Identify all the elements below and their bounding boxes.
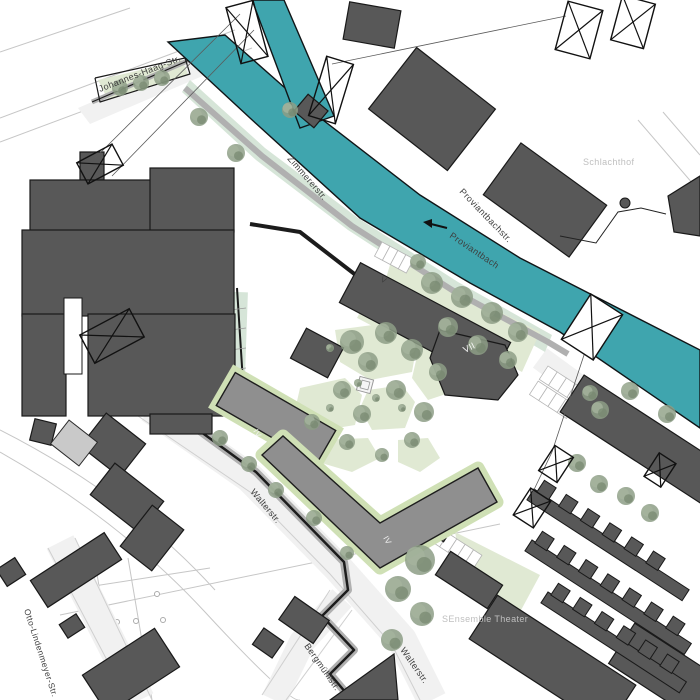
tree bbox=[326, 344, 334, 352]
building-light bbox=[51, 420, 98, 466]
building-existing bbox=[22, 314, 66, 416]
building-existing bbox=[150, 414, 212, 434]
tree bbox=[421, 272, 443, 294]
tree bbox=[306, 510, 322, 526]
tree bbox=[358, 352, 378, 372]
tree bbox=[405, 545, 435, 575]
retaining-wall bbox=[250, 224, 370, 286]
tree bbox=[190, 108, 208, 126]
tree bbox=[372, 394, 380, 402]
site-plan-map: Johannes-Haag-Str.Zimmererstr.Proviantba… bbox=[0, 0, 700, 700]
tree bbox=[508, 322, 528, 342]
tree bbox=[241, 456, 257, 472]
tree bbox=[386, 380, 406, 400]
tree bbox=[282, 102, 298, 118]
building-existing bbox=[290, 328, 343, 378]
building-existing bbox=[668, 176, 700, 236]
truss-pylon bbox=[555, 1, 603, 59]
small-structure bbox=[620, 198, 630, 208]
tree bbox=[414, 402, 434, 422]
tree bbox=[410, 254, 426, 270]
tree bbox=[268, 482, 284, 498]
building-existing bbox=[369, 47, 496, 170]
parcel-line bbox=[0, 8, 130, 52]
tree bbox=[481, 302, 503, 324]
tree bbox=[582, 385, 598, 401]
parcel-line bbox=[663, 112, 700, 155]
tree bbox=[438, 317, 458, 337]
tree bbox=[385, 576, 411, 602]
tree bbox=[304, 414, 320, 430]
tree bbox=[451, 286, 473, 308]
tree bbox=[398, 404, 406, 412]
tree bbox=[404, 432, 420, 448]
street-label-sensemble-theater: SEnsemble Theater bbox=[442, 614, 528, 624]
tree bbox=[429, 363, 447, 381]
tree bbox=[591, 401, 609, 419]
tree bbox=[617, 487, 635, 505]
tree bbox=[375, 322, 397, 344]
tree bbox=[354, 379, 362, 387]
survey-node bbox=[155, 592, 160, 597]
street-label-schlachthof: Schlachthof bbox=[583, 157, 635, 167]
tree bbox=[658, 405, 676, 423]
tree bbox=[621, 382, 639, 400]
building-existing bbox=[0, 558, 26, 587]
building-existing bbox=[343, 2, 401, 48]
building-existing bbox=[22, 230, 234, 316]
tree bbox=[340, 546, 354, 560]
building-existing bbox=[252, 628, 283, 658]
tree bbox=[227, 144, 245, 162]
tree bbox=[568, 454, 586, 472]
truss-pylon bbox=[611, 0, 656, 49]
tree bbox=[326, 404, 334, 412]
tree bbox=[375, 448, 389, 462]
tree bbox=[212, 430, 228, 446]
tree bbox=[590, 475, 608, 493]
tree bbox=[340, 330, 364, 354]
survey-node bbox=[134, 619, 139, 624]
building-existing bbox=[30, 180, 168, 232]
tree bbox=[339, 434, 355, 450]
courtyard bbox=[64, 298, 82, 374]
tree bbox=[353, 405, 371, 423]
site-plan-page: Johannes-Haag-Str.Zimmererstr.Proviantba… bbox=[0, 0, 700, 700]
tree bbox=[641, 504, 659, 522]
street-label-otto-lindenmeyer-str: Otto-Lindenmeyer-Str. bbox=[22, 608, 60, 699]
building-existing bbox=[59, 614, 84, 638]
tree bbox=[401, 339, 423, 361]
survey-node bbox=[161, 618, 166, 623]
building-existing bbox=[150, 168, 234, 232]
tree bbox=[410, 602, 434, 626]
tree bbox=[381, 629, 403, 651]
tree bbox=[333, 381, 351, 399]
tree bbox=[499, 351, 517, 369]
